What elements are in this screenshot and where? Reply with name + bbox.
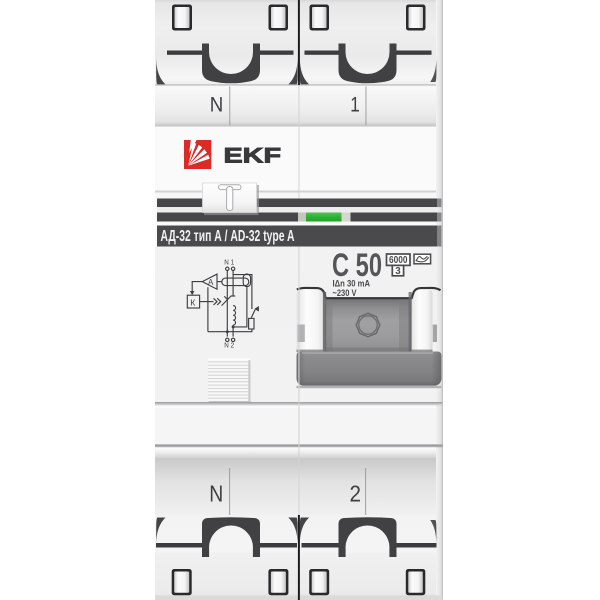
svg-text:N 2: N 2 bbox=[224, 341, 234, 350]
svg-text:N 1: N 1 bbox=[224, 257, 234, 266]
svg-text:A: A bbox=[208, 278, 214, 287]
svg-text:N: N bbox=[210, 92, 224, 116]
svg-text:EKF: EKF bbox=[224, 145, 282, 168]
svg-text:АД-32 тип А / AD-32 type A: АД-32 тип А / AD-32 type A bbox=[161, 228, 295, 245]
svg-text:2: 2 bbox=[350, 481, 362, 507]
svg-text:C 50: C 50 bbox=[332, 247, 382, 283]
svg-text:К: К bbox=[190, 297, 195, 307]
svg-text:N: N bbox=[209, 481, 223, 507]
svg-text:3: 3 bbox=[395, 266, 401, 277]
svg-text:1: 1 bbox=[350, 92, 360, 116]
